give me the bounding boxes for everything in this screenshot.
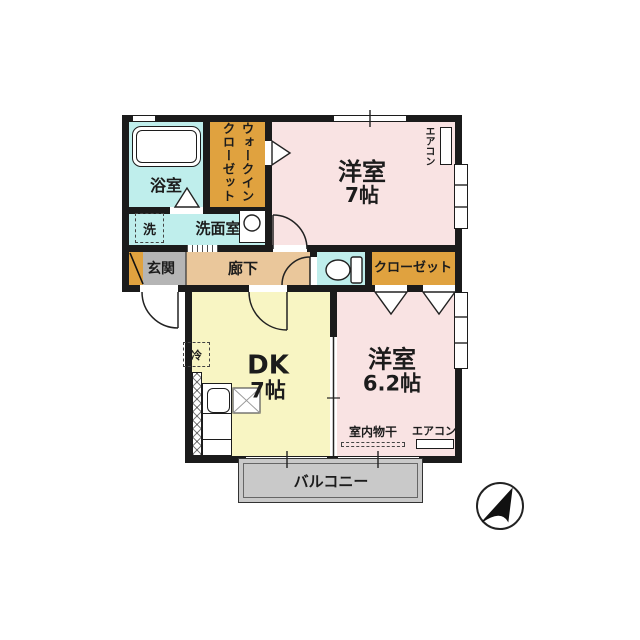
label-aircon-bedroom62: エアコン <box>412 426 456 439</box>
washing-machine-label: 洗 <box>143 219 156 238</box>
label-indoor-drying: 室内物干 <box>349 426 397 440</box>
label-aircon-bedroom7: エアコン <box>421 126 436 172</box>
label-bedroom7-size: 7帖 <box>338 185 386 206</box>
label-bedroom7-name: 洋室 <box>338 160 386 185</box>
label-balcony: バルコニー <box>294 473 369 490</box>
window-bedroom7-top <box>333 115 407 122</box>
counter-divider1 <box>203 413 231 414</box>
label-dk: DK 7帖 <box>247 352 289 401</box>
bathtub-inner <box>136 130 197 163</box>
label-closet: クローゼット <box>374 262 452 277</box>
label-bath: 浴室 <box>150 177 182 195</box>
washroom-sliding-door <box>187 245 218 252</box>
refrigerator: 冷 <box>183 342 210 367</box>
room-toilet <box>317 252 365 285</box>
label-dk-size: 7帖 <box>247 380 289 402</box>
washing-machine: 洗 <box>135 213 164 243</box>
floor-plan: 洗 冷 <box>0 0 640 640</box>
north-arrow-icon <box>477 483 523 529</box>
label-entrance: 玄関 <box>147 261 175 277</box>
closet-door-gap-right <box>423 285 455 292</box>
closet-door-gap-left <box>375 285 407 292</box>
indoor-drying-rail <box>341 442 405 447</box>
counter-divider2 <box>203 439 231 440</box>
label-washroom: 洗面室 <box>195 220 240 237</box>
kitchen-side-panel <box>192 372 202 456</box>
aircon-unit-bedroom62 <box>416 439 454 449</box>
label-bedroom62: 洋室 6.2帖 <box>363 347 421 394</box>
sliding-partition-gap <box>330 337 337 456</box>
window-bath-top <box>132 115 156 122</box>
label-bedroom7: 洋室 7帖 <box>338 160 386 206</box>
dk-door-gap <box>249 285 287 292</box>
wic-door-gap <box>265 141 272 165</box>
toilet-door-gap <box>310 257 317 285</box>
label-bedroom62-size: 6.2帖 <box>363 373 421 395</box>
label-bedroom62-name: 洋室 <box>363 347 421 372</box>
kitchen-counter <box>202 383 232 456</box>
entrance-door-panel <box>129 252 143 285</box>
kitchen-sink <box>207 388 230 413</box>
aircon-unit-bedroom7 <box>440 127 452 165</box>
window-bedroom7-right <box>454 164 468 229</box>
window-bedroom62-right <box>454 292 468 369</box>
label-hallway: 廊下 <box>228 260 258 277</box>
label-dk-name: DK <box>247 352 289 379</box>
washbasin <box>239 210 266 243</box>
bathtub <box>132 126 201 167</box>
footprint-notch <box>122 292 185 463</box>
bath-door-gap <box>170 207 203 214</box>
label-walk-in-closet: ウォークインクローゼット <box>210 122 265 207</box>
entrance-door-gap <box>140 285 178 292</box>
bedroom7-door-gap <box>273 245 307 252</box>
refrigerator-label: 冷 <box>191 347 202 363</box>
